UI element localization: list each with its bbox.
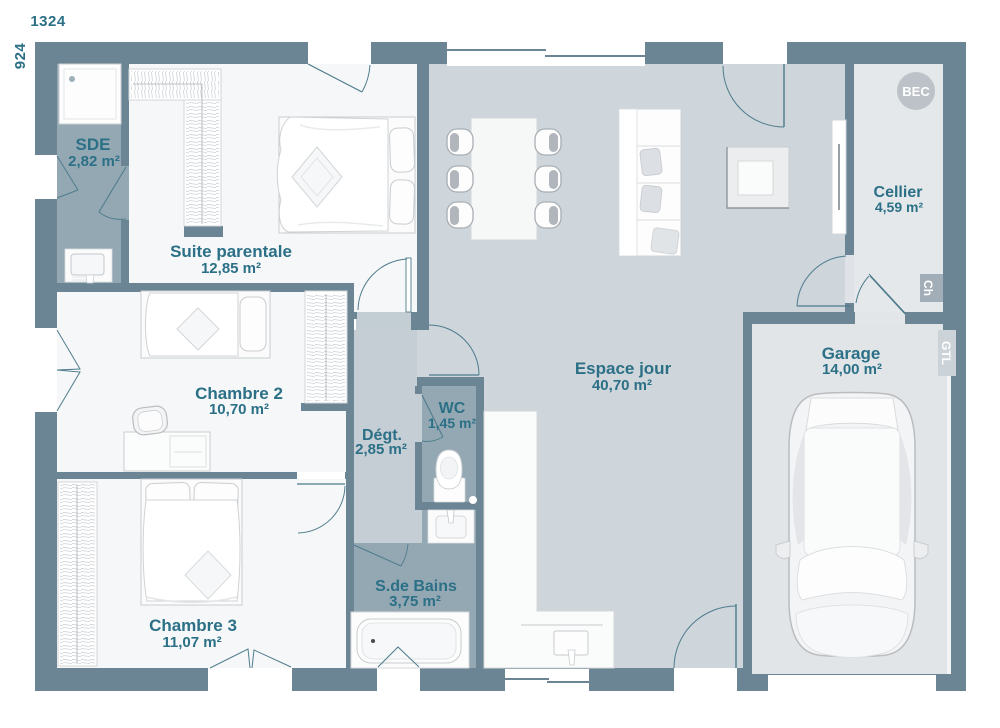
svg-text:GTL: GTL	[939, 341, 953, 365]
svg-text:10,70 m²: 10,70 m²	[209, 401, 269, 418]
svg-text:4,59 m²: 4,59 m²	[875, 199, 924, 215]
svg-text:Ch: Ch	[921, 280, 935, 296]
svg-text:Suite parentale: Suite parentale	[170, 242, 292, 261]
svg-text:11,07 m²: 11,07 m²	[162, 634, 221, 651]
svg-text:1,45 m²: 1,45 m²	[428, 415, 477, 431]
svg-text:SDE: SDE	[76, 135, 111, 154]
svg-text:924: 924	[12, 43, 29, 70]
svg-text:14,00 m²: 14,00 m²	[822, 361, 882, 378]
svg-text:1324: 1324	[30, 13, 66, 30]
svg-text:40,70 m²: 40,70 m²	[592, 377, 652, 394]
svg-text:12,85 m²: 12,85 m²	[201, 260, 261, 277]
svg-text:BEC: BEC	[902, 84, 930, 99]
svg-text:2,82 m²: 2,82 m²	[68, 153, 120, 170]
svg-text:3,75 m²: 3,75 m²	[389, 593, 441, 610]
svg-text:Espace jour: Espace jour	[575, 359, 672, 378]
svg-text:Chambre 3: Chambre 3	[149, 616, 237, 635]
svg-text:2,85 m²: 2,85 m²	[355, 441, 407, 458]
